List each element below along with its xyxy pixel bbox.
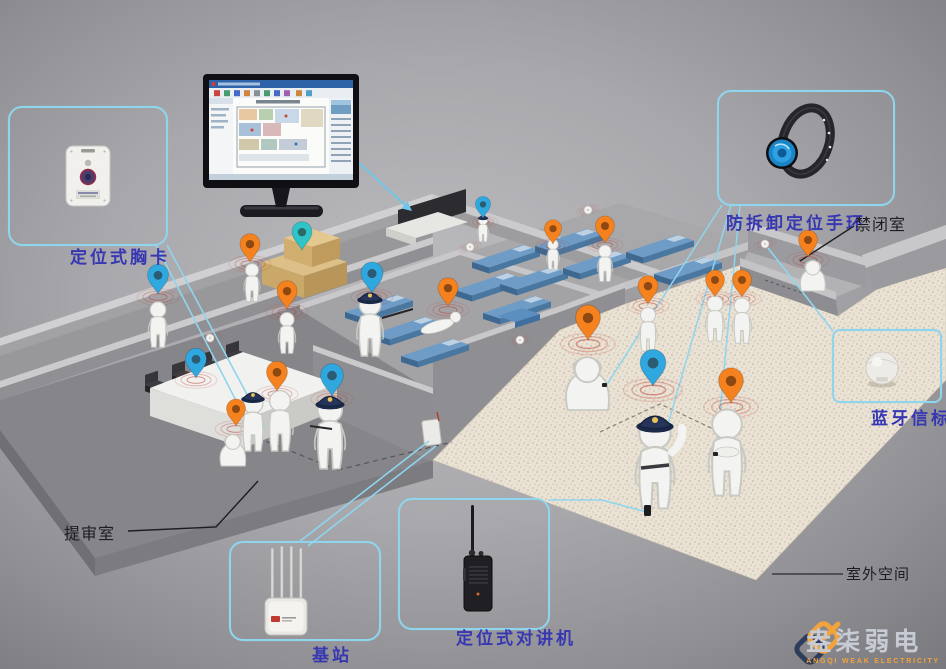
walkie-callout-box	[398, 498, 550, 630]
handheld-radio	[644, 505, 651, 516]
base-station-label: 基站	[312, 641, 352, 666]
confinement-label: 禁闭室	[855, 211, 906, 235]
wristband-callout-box	[717, 90, 895, 206]
interrogation-label: 提审室	[64, 520, 115, 544]
crossed-arms	[715, 447, 739, 457]
wristband-on-figure	[713, 452, 718, 456]
logo-name: 盎柒弱电	[806, 630, 940, 655]
wall-beacon	[516, 336, 524, 344]
walkie-label: 定位式对讲机	[456, 624, 576, 649]
monitor-screen	[209, 80, 353, 180]
outdoor-label: 室外空间	[846, 563, 910, 584]
wall-beacon	[761, 240, 769, 248]
wristband-on-figure	[602, 383, 607, 387]
monitor	[203, 74, 359, 217]
badge-callout-box	[8, 106, 168, 246]
base-station-callout-box	[229, 541, 381, 641]
badge-label: 定位式胸卡	[70, 243, 170, 268]
monitor-stand	[272, 188, 290, 207]
company-logo: 盎柒弱电 ANGQI WEAK ELECTRICITY	[806, 630, 940, 665]
scene: 定位式胸卡 防拆卸定位手环 禁闭室 蓝牙信标 提审室 基站 定位式对讲机 室外空…	[0, 0, 946, 669]
beacon-callout-box	[832, 329, 942, 403]
guard-figure	[477, 215, 488, 241]
wall-beacon	[206, 334, 214, 342]
wristband-label: 防拆卸定位手环	[726, 209, 866, 234]
logo-subtitle: ANGQI WEAK ELECTRICITY	[806, 658, 940, 665]
wall-beacon	[584, 206, 592, 214]
beacon-label: 蓝牙信标	[871, 404, 946, 429]
wall-beacon	[466, 243, 474, 251]
